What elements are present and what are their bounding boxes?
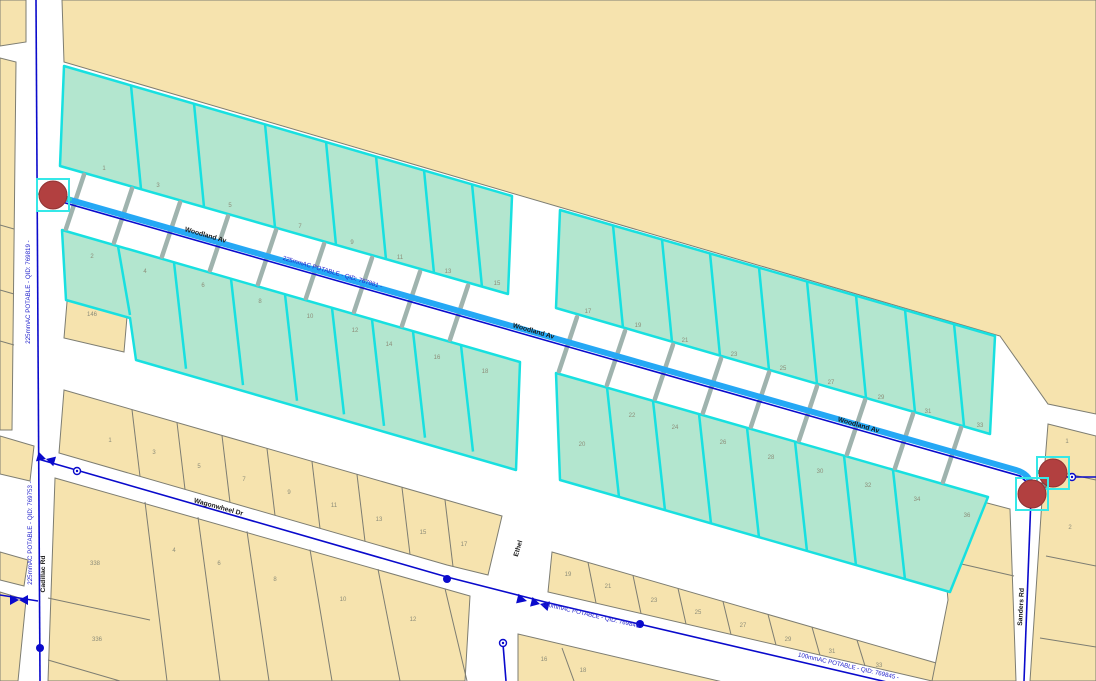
lot-number: 27 [740, 623, 747, 629]
lot-number: 21 [682, 338, 689, 344]
lot-number: 31 [829, 649, 836, 655]
lot-number: 29 [785, 637, 792, 643]
lot-number: 10 [340, 597, 347, 603]
dot[interactable] [36, 644, 44, 652]
lot-number: 15 [420, 530, 427, 536]
lot-number: 26 [720, 440, 727, 446]
lot-number: 15 [494, 281, 501, 287]
lot-number: 20 [579, 442, 586, 448]
lot-number: 13 [445, 269, 452, 275]
lot-number: 10 [307, 314, 314, 320]
street-label: Cadillac Rd [40, 555, 47, 592]
lot-number: 13 [376, 517, 383, 523]
lot-number: 23 [651, 598, 658, 604]
pipe-label: 225mmAC POTABLE - QID: 769753 - [27, 481, 34, 584]
parcel-topleft-corner[interactable] [0, 0, 26, 46]
lot-number: 12 [410, 617, 417, 623]
lot-number: 32 [865, 483, 872, 489]
lot-number: 23 [731, 352, 738, 358]
lot-number: 18 [482, 369, 489, 375]
hydrant-device-east-upper[interactable] [1039, 459, 1067, 487]
hydrant-device-east-lower[interactable] [1018, 480, 1046, 508]
lot-number: 338 [90, 561, 101, 567]
pipe-label: 225mmAC POTABLE - QID: 769819 - [25, 240, 32, 343]
lot-number: 11 [331, 503, 338, 509]
lot-number: 336 [92, 637, 103, 643]
lot-number: 19 [635, 323, 642, 329]
lot-number: 17 [585, 309, 592, 315]
lot-number: 146 [87, 312, 98, 318]
lot-number: 28 [768, 455, 775, 461]
lot-number: 36 [964, 513, 971, 519]
lot-number: 18 [580, 668, 587, 674]
lot-number: 14 [386, 342, 393, 348]
lot-number: 25 [780, 366, 787, 372]
lot-number: 27 [828, 380, 835, 386]
lot-number: 30 [817, 469, 824, 475]
dot[interactable] [443, 575, 451, 583]
lot-number: 33 [876, 663, 883, 669]
lot-number: 33 [977, 423, 984, 429]
circle-valve[interactable] [74, 468, 81, 475]
lot-number: 24 [672, 425, 679, 431]
lot-number: 16 [541, 657, 548, 663]
gis-map-canvas[interactable]: 1357911131524681012141618171921232527293… [0, 0, 1096, 681]
lot-number: 16 [434, 355, 441, 361]
lot-number: 12 [352, 328, 359, 334]
lot-number: 17 [461, 542, 468, 548]
lot-number: 22 [629, 413, 636, 419]
hydrant-device-west[interactable] [39, 181, 67, 209]
lot-number: 34 [914, 497, 921, 503]
lot-number: 31 [925, 409, 932, 415]
lot-number: 11 [397, 255, 404, 261]
lot-number: 21 [605, 584, 612, 590]
circle-valve[interactable] [500, 640, 507, 647]
lot-number: 19 [565, 572, 572, 578]
lot-number: 29 [878, 395, 885, 401]
lot-number: 25 [695, 610, 702, 616]
